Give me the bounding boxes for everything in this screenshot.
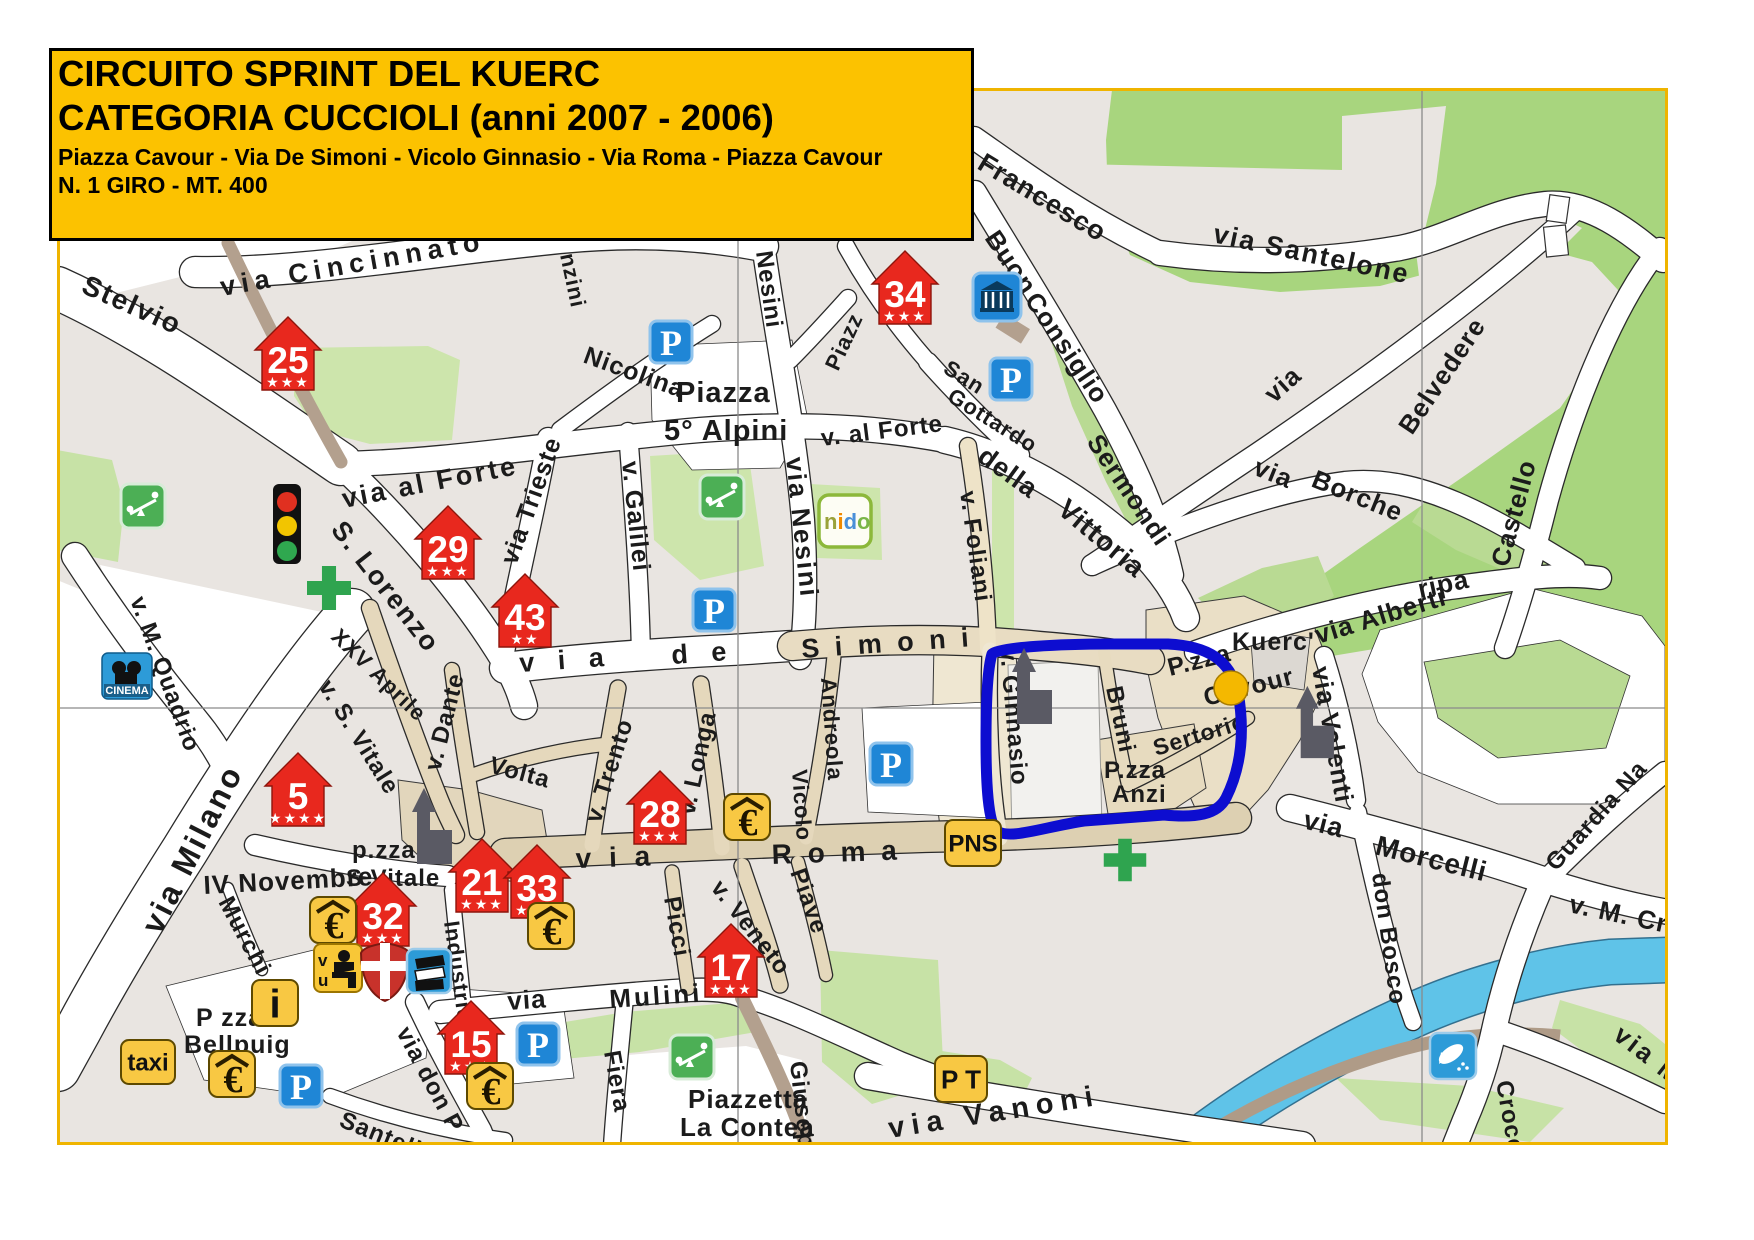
svg-text:Piazzetta: Piazzetta bbox=[688, 1084, 808, 1114]
svg-text:CINEMA: CINEMA bbox=[105, 685, 148, 697]
svg-text:P: P bbox=[527, 1025, 549, 1065]
svg-text:v: v bbox=[318, 951, 328, 970]
svg-text:nido: nido bbox=[824, 509, 870, 534]
svg-text:Vicolo: Vicolo bbox=[787, 769, 817, 842]
svg-text:taxi: taxi bbox=[127, 1050, 168, 1077]
svg-text:★★★: ★★★ bbox=[266, 374, 310, 390]
svg-text:Anzi: Anzi bbox=[1112, 781, 1167, 808]
svg-text:€: € bbox=[739, 802, 758, 844]
svg-text:P: P bbox=[290, 1067, 312, 1107]
svg-text:★★★: ★★★ bbox=[638, 828, 682, 844]
svg-text:P.zza: P.zza bbox=[1104, 757, 1166, 784]
svg-text:p.zza: p.zza bbox=[352, 837, 416, 864]
svg-text:★★: ★★ bbox=[510, 631, 539, 647]
svg-text:P: P bbox=[1000, 360, 1022, 400]
svg-text:R o m a: R o m a bbox=[771, 835, 901, 870]
svg-text:P: P bbox=[660, 323, 682, 363]
svg-text:v i a: v i a bbox=[575, 840, 656, 874]
svg-text:5° Alpini: 5° Alpini bbox=[664, 415, 788, 447]
svg-text:★★★: ★★★ bbox=[709, 981, 753, 997]
svg-text:P: P bbox=[880, 745, 902, 785]
svg-text:La Contea: La Contea bbox=[680, 1112, 815, 1142]
svg-text:€: € bbox=[482, 1071, 501, 1113]
svg-text:PNS: PNS bbox=[948, 831, 997, 858]
svg-text:u: u bbox=[318, 971, 328, 990]
svg-text:via: via bbox=[506, 983, 547, 1016]
svg-text:Kuerc': Kuerc' bbox=[1232, 628, 1315, 656]
svg-text:€: € bbox=[224, 1059, 243, 1101]
svg-text:P T: P T bbox=[941, 1064, 981, 1094]
svg-text:d e: d e bbox=[670, 636, 735, 670]
svg-text:P: P bbox=[703, 591, 725, 631]
svg-text:Piazza: Piazza bbox=[676, 377, 771, 409]
svg-text:€: € bbox=[325, 905, 344, 947]
svg-text:★★★: ★★★ bbox=[883, 308, 927, 324]
svg-text:i: i bbox=[269, 982, 280, 1026]
svg-text:★★★: ★★★ bbox=[426, 563, 470, 579]
svg-text:★★★★: ★★★★ bbox=[269, 810, 327, 826]
svg-text:€: € bbox=[543, 911, 562, 953]
svg-text:★★★: ★★★ bbox=[460, 896, 504, 912]
